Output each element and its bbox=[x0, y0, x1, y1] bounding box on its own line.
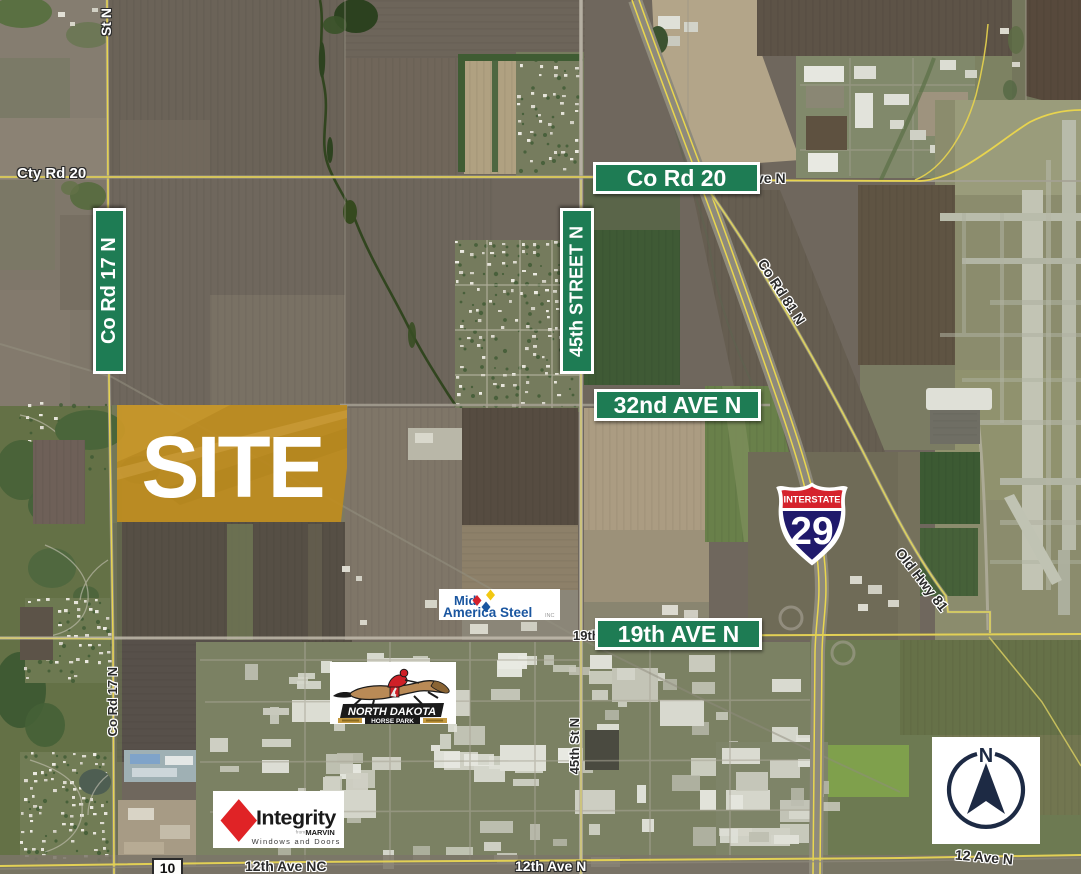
svg-text:Windows and Doors: Windows and Doors bbox=[252, 837, 341, 846]
svg-text:HORSE PARK: HORSE PARK bbox=[371, 718, 414, 724]
svg-text:MARVIN: MARVIN bbox=[305, 828, 334, 837]
svg-text:from: from bbox=[296, 830, 306, 835]
svg-text:29: 29 bbox=[790, 510, 833, 553]
svg-text:Integrity: Integrity bbox=[256, 807, 337, 829]
svg-text:INTERSTATE: INTERSTATE bbox=[784, 495, 841, 505]
svg-text:INC: INC bbox=[545, 613, 555, 619]
svg-text:NORTH DAKOTA: NORTH DAKOTA bbox=[348, 706, 436, 718]
